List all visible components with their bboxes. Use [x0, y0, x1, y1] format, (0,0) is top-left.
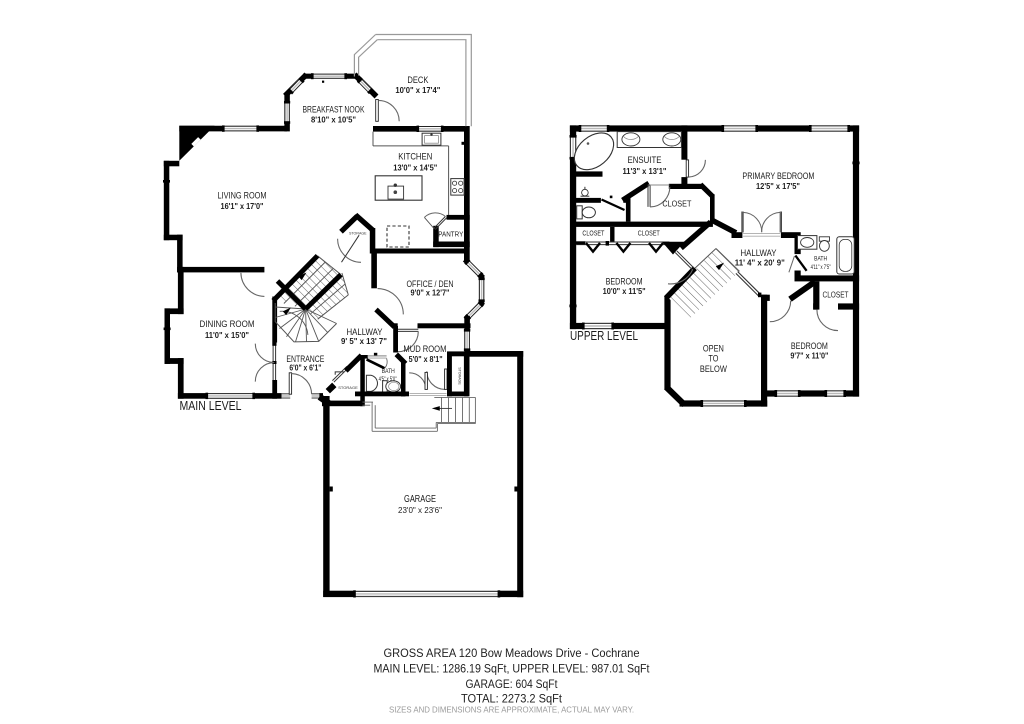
svg-text:HALLWAY: HALLWAY [347, 327, 383, 337]
svg-text:9'7" x 11'0": 9'7" x 11'0" [790, 351, 828, 360]
svg-text:BEDROOM: BEDROOM [791, 341, 828, 351]
svg-text:CLOSET: CLOSET [662, 198, 692, 208]
svg-text:MAIN LEVEL: MAIN LEVEL [180, 398, 242, 413]
svg-text:TO: TO [708, 354, 718, 364]
svg-text:CLOSET: CLOSET [823, 290, 849, 299]
svg-text:CLOSET: CLOSET [638, 230, 661, 237]
svg-text:STORAGE: STORAGE [338, 385, 358, 390]
svg-text:TOTAL: 2273.2 SqFt: TOTAL: 2273.2 SqFt [461, 691, 563, 705]
svg-text:KITCHEN: KITCHEN [398, 152, 432, 162]
svg-text:DINING ROOM: DINING ROOM [200, 319, 255, 329]
svg-text:BATH: BATH [814, 256, 827, 263]
svg-text:8'10" x 10'5": 8'10" x 10'5" [311, 116, 356, 125]
svg-text:5'0" x 8'1": 5'0" x 8'1" [409, 355, 443, 364]
svg-text:BREAKFAST NOOK: BREAKFAST NOOK [303, 104, 365, 114]
svg-text:LIVING ROOM: LIVING ROOM [218, 191, 267, 201]
svg-text:UPPER LEVEL: UPPER LEVEL [570, 328, 638, 343]
svg-text:10'0" x 17'4": 10'0" x 17'4" [395, 86, 440, 95]
svg-text:DECK: DECK [407, 75, 428, 85]
svg-text:STORAGE: STORAGE [457, 367, 461, 385]
svg-text:11'3" x 13'1": 11'3" x 13'1" [623, 167, 667, 176]
svg-text:4'11" x 7'5": 4'11" x 7'5" [811, 265, 831, 271]
svg-text:STORAGE: STORAGE [349, 232, 367, 236]
svg-text:OPEN: OPEN [703, 344, 724, 354]
svg-text:PRIMARY BEDROOM: PRIMARY BEDROOM [742, 171, 814, 181]
svg-text:MAIN LEVEL: 1286.19 SqFt, UPPE: MAIN LEVEL: 1286.19 SqFt, UPPER LEVEL: 9… [374, 662, 651, 676]
svg-text:ENSUITE: ENSUITE [628, 155, 662, 165]
svg-text:HALLWAY: HALLWAY [741, 248, 777, 258]
svg-text:BATH: BATH [382, 368, 395, 375]
svg-text:MUD ROOM: MUD ROOM [403, 344, 446, 354]
svg-text:23'0" x 23'6": 23'0" x 23'6" [398, 505, 442, 515]
svg-text:PANTRY: PANTRY [438, 231, 463, 238]
svg-text:SIZES AND DIMENSIONS ARE APPRO: SIZES AND DIMENSIONS ARE APPROXIMATE, AC… [389, 705, 634, 714]
svg-text:BEDROOM: BEDROOM [606, 277, 643, 287]
svg-text:9' 5" x 13' 7": 9' 5" x 13' 7" [341, 337, 387, 346]
svg-text:GROSS AREA 120 Bow Meadows Dri: GROSS AREA 120 Bow Meadows Drive - Cochr… [384, 646, 640, 660]
svg-text:GARAGE: 604 SqFt: GARAGE: 604 SqFt [466, 677, 559, 691]
svg-text:10'0" x 11'5": 10'0" x 11'5" [603, 287, 646, 296]
svg-text:6'0" x 6'1": 6'0" x 6'1" [289, 364, 321, 373]
svg-text:4'5" x 5'0": 4'5" x 5'0" [379, 377, 397, 383]
svg-text:13'0" x 14'5": 13'0" x 14'5" [393, 163, 437, 172]
svg-text:11'0" x 15'0": 11'0" x 15'0" [205, 331, 249, 340]
svg-text:11' 4" x 20' 9": 11' 4" x 20' 9" [735, 258, 785, 267]
svg-text:BELOW: BELOW [700, 364, 727, 374]
svg-text:OFFICE / DEN: OFFICE / DEN [407, 279, 454, 289]
svg-text:9'0" x 12'7": 9'0" x 12'7" [411, 289, 450, 298]
svg-text:16'1" x 17'0": 16'1" x 17'0" [221, 202, 264, 211]
svg-text:CLOSET: CLOSET [582, 230, 605, 237]
svg-text:12'5" x 17'5": 12'5" x 17'5" [756, 182, 800, 191]
svg-text:GARAGE: GARAGE [404, 494, 436, 505]
